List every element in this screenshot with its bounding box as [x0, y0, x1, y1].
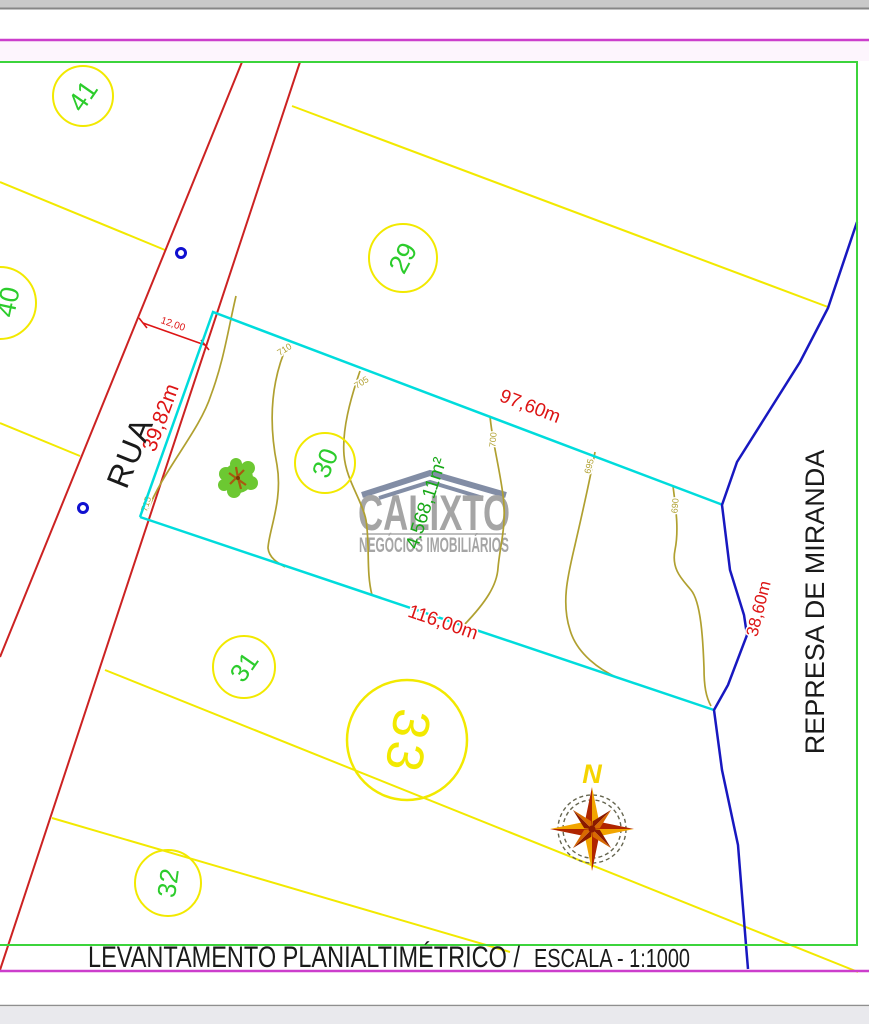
sheet-scale: ESCALA - 1:1000	[534, 943, 690, 973]
contour-label-690: 690	[669, 498, 680, 514]
sheet-title: LEVANTAMENTO PLANIALTIMÉTRICO /	[88, 941, 521, 974]
lot-number-33: 33	[373, 705, 442, 780]
survey-marker	[79, 504, 88, 513]
window-bottom-edge	[0, 1007, 869, 1024]
margin-tint	[0, 41, 869, 61]
survey-marker	[177, 249, 186, 258]
compass-north-label: N	[582, 759, 602, 789]
water-label: REPRESA DE MIRANDA	[800, 450, 830, 755]
contour-label-700: 700	[487, 432, 498, 448]
window-top-edge	[0, 0, 869, 8]
survey-plan-screenshot: CALIXTO NEGÓCIOS IMOBILIÁRIOS 12,00 715 …	[0, 0, 869, 1024]
watermark-tagline: NEGÓCIOS IMOBILIÁRIOS	[359, 533, 509, 557]
lot-number-32: 32	[151, 867, 185, 900]
